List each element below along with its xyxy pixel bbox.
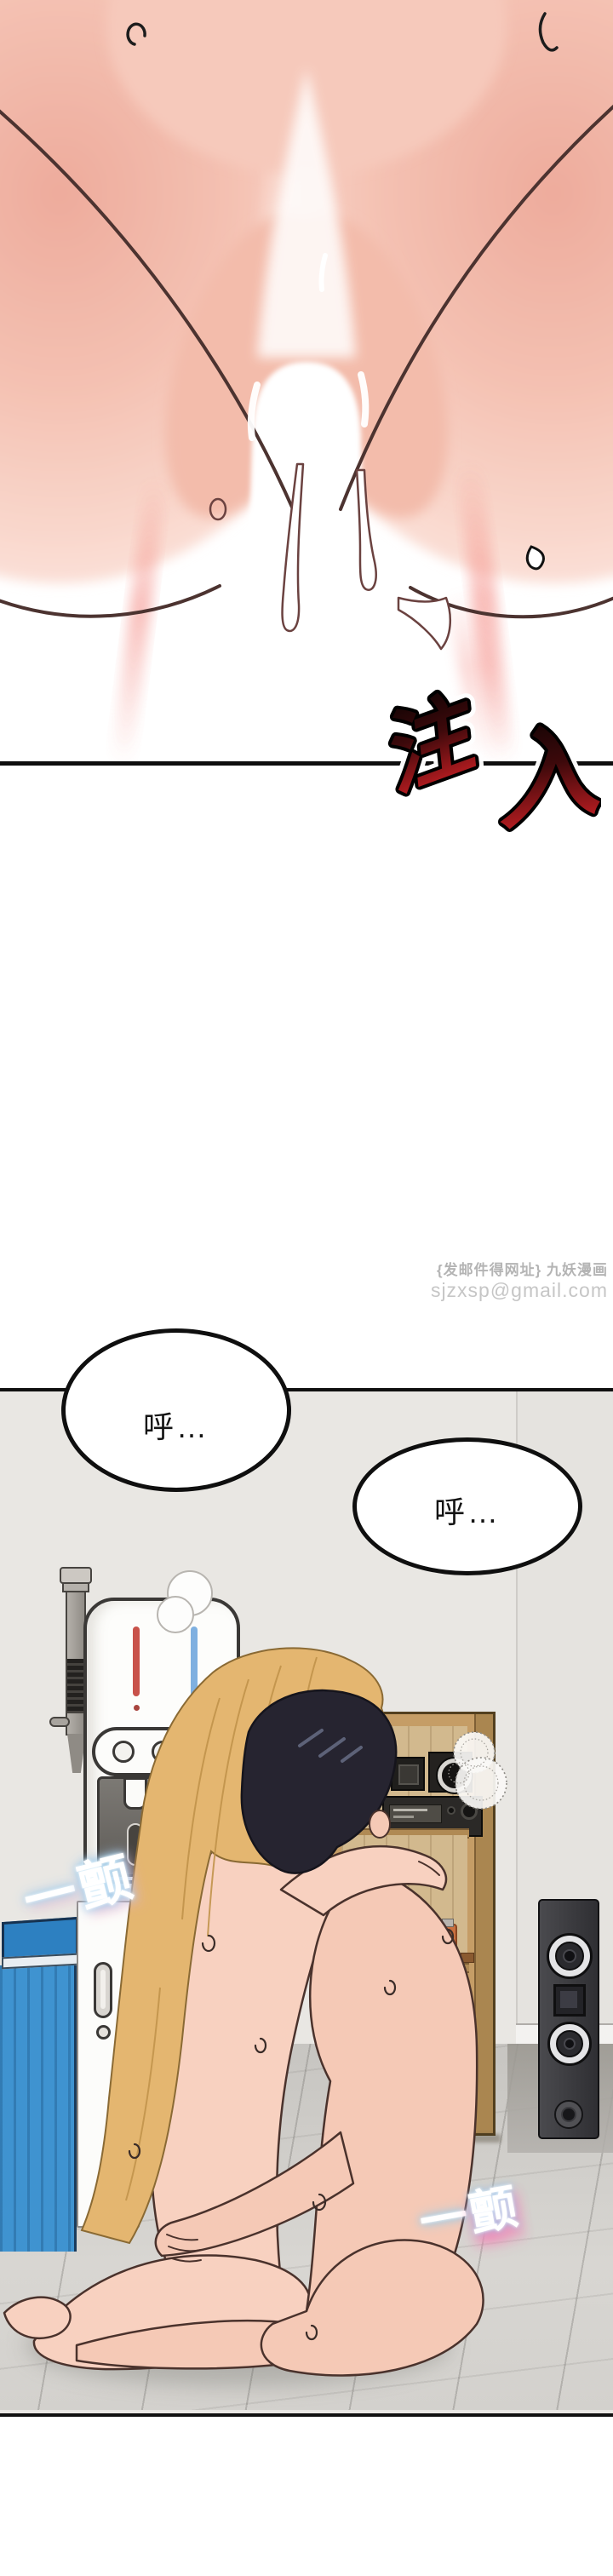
top-artwork-abstract bbox=[0, 0, 613, 761]
svg-text:入: 入 bbox=[483, 711, 601, 838]
calligraphy-sfx: 注 入 注 入 bbox=[373, 674, 601, 838]
figure-b-ear bbox=[370, 1810, 390, 1838]
speech-bubble-1-text: 呼… bbox=[143, 1403, 209, 1447]
calligraphy-ink: 注 入 bbox=[373, 681, 601, 838]
svg-text:注: 注 bbox=[373, 681, 495, 808]
comic-page: 注 入 注 入 {发邮件得网址} 九妖漫画 sjzxsp@gmail.com bbox=[0, 0, 613, 2576]
watermark-line2: sjzxsp@gmail.com bbox=[431, 1279, 608, 1301]
watermark-line1: {发邮件得网址} 九妖漫画 bbox=[431, 1262, 608, 1279]
sfx-right-char2: 颤 bbox=[465, 2179, 524, 2240]
speech-bubble-1: 呼… bbox=[61, 1328, 291, 1492]
watermark: {发邮件得网址} 九妖漫画 sjzxsp@gmail.com bbox=[431, 1262, 608, 1301]
speech-bubble-2: 呼… bbox=[352, 1437, 582, 1575]
sfx-right-char1: 一 bbox=[415, 2188, 474, 2249]
figure-a-foot bbox=[4, 2298, 71, 2338]
speech-bubble-2-text: 呼… bbox=[434, 1488, 501, 1532]
